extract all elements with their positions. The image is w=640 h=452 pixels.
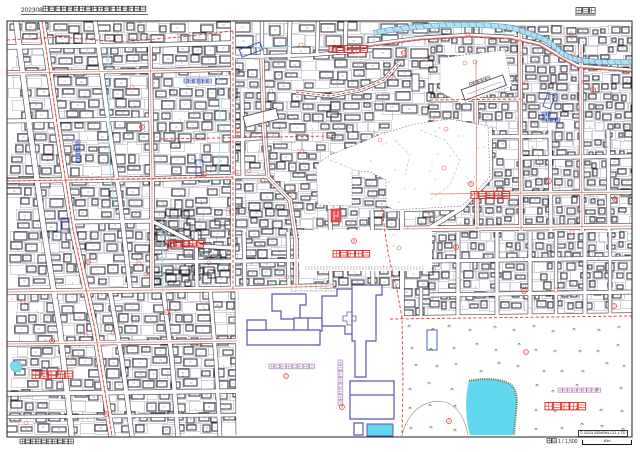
- svg-text:2: 2: [166, 310, 168, 314]
- svg-text:202308: 202308: [21, 7, 43, 14]
- svg-text:5: 5: [51, 339, 53, 343]
- svg-text:2: 2: [285, 374, 287, 378]
- svg-text:6: 6: [353, 239, 355, 243]
- svg-text:2: 2: [448, 419, 450, 423]
- svg-text:7: 7: [237, 128, 239, 132]
- svg-text:8: 8: [455, 245, 457, 249]
- svg-text:7: 7: [203, 172, 205, 176]
- svg-text:9: 9: [548, 179, 550, 183]
- svg-text:1: 1: [525, 350, 527, 354]
- svg-text:6: 6: [592, 88, 594, 92]
- svg-text:4: 4: [105, 412, 107, 416]
- svg-text:9: 9: [523, 289, 525, 293]
- svg-text:8: 8: [87, 260, 89, 264]
- svg-text:5: 5: [141, 125, 143, 129]
- svg-text:4: 4: [403, 51, 405, 55]
- svg-text:3: 3: [470, 182, 472, 186]
- svg-text:1: 1: [614, 197, 616, 201]
- svg-text:1: 1: [613, 304, 615, 308]
- svg-text:1 / 1,500: 1 / 1,500: [558, 439, 578, 445]
